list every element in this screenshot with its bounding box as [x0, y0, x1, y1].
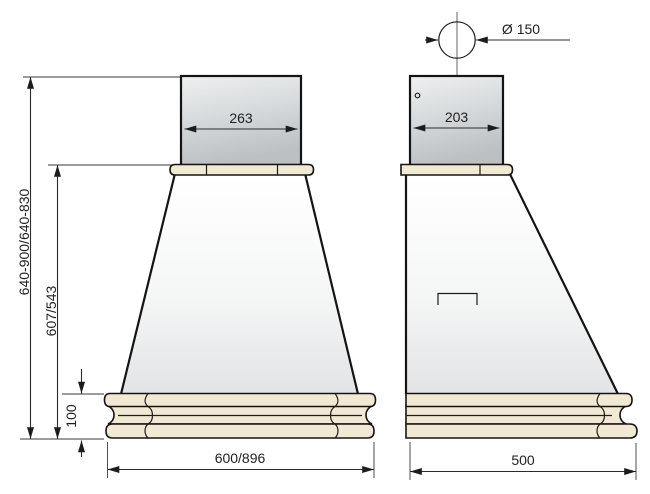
dim-body-height: 607/543: [43, 285, 59, 336]
dim-overall-height: 640-900/640-830: [16, 188, 32, 295]
dim-chimney-depth: 203: [445, 109, 469, 125]
dim-chimney-width: 263: [229, 110, 253, 126]
dim-base-height: 100: [63, 404, 79, 428]
technical-drawing-page: 640-900/640-830 607/543 100 263: [0, 0, 650, 494]
front-view: 640-900/640-830 607/543 100 263: [16, 76, 376, 478]
side-top-trim: [401, 165, 513, 176]
dim-depth: 500: [511, 452, 535, 468]
side-base-moulding: [406, 394, 637, 439]
dim-width: 600/896: [215, 450, 266, 466]
front-canopy-body: [121, 176, 358, 394]
dim-duct-diameter: Ø 150: [502, 21, 540, 37]
front-top-trim: [170, 165, 314, 176]
hood-dimension-drawing: 640-900/640-830 607/543 100 263: [0, 0, 650, 494]
side-canopy-body: [406, 176, 618, 394]
front-base-moulding: [105, 394, 376, 439]
side-view: Ø 150 203 500: [401, 12, 637, 480]
side-base-bottom-band: [406, 424, 637, 438]
